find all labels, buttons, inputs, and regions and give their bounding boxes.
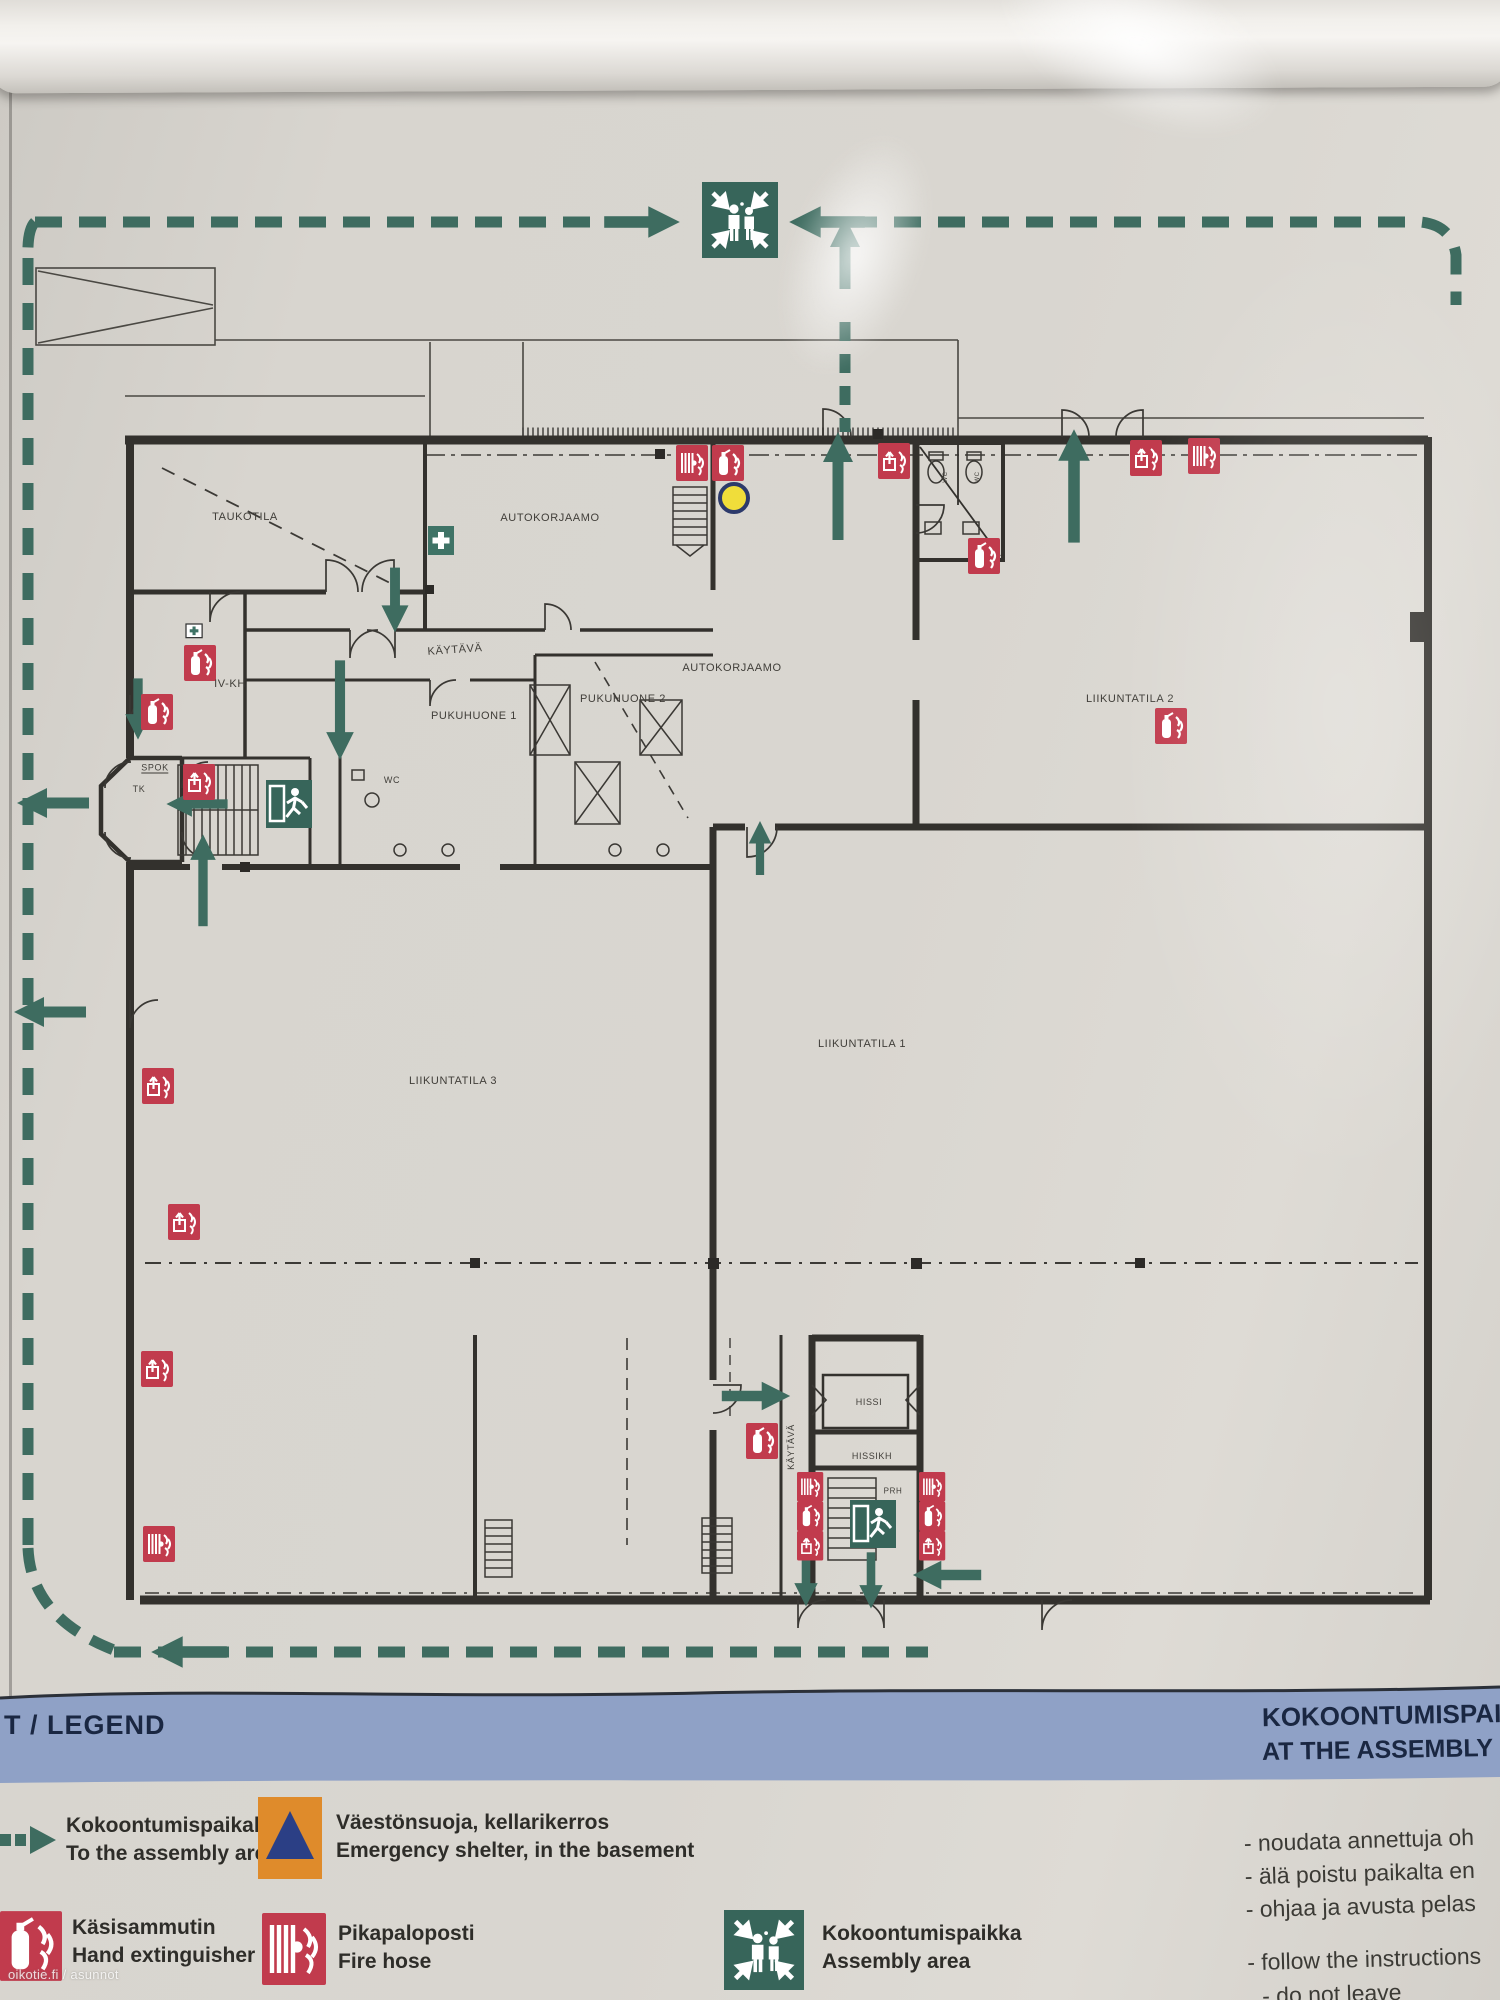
legend-item-assembly: Kokoontumispaikka Assembly area — [720, 1910, 1022, 1990]
banner-legend-title: T / LEGEND — [4, 1710, 166, 1741]
evacuation-arrows — [14, 206, 1090, 1668]
banner-assembly-title-line2: AT THE ASSEMBLY — [1262, 1734, 1494, 1767]
room-label-autokorjaamo-2: AUTOKORJAAMO — [682, 662, 781, 674]
room-label-iv-kh: IV-KH — [214, 678, 246, 690]
room-label-spok: SPOK — [141, 763, 168, 774]
legend-banner: T / LEGEND KOKOONTUMISPAIK AT THE ASSEMB… — [0, 1678, 1500, 1790]
room-label-hissikh: HISSIKH — [852, 1451, 892, 1461]
room-label-kaytava-vertical: KÄYTÄVÄ — [786, 1424, 796, 1470]
room-label-tk: TK — [133, 784, 146, 794]
legend-hose-fi: Pikapaloposti — [338, 1920, 475, 1948]
safety-signs — [141, 182, 1220, 1562]
room-label-autokorjaamo-1: AUTOKORJAAMO — [500, 512, 599, 524]
column-markers — [240, 429, 1145, 1269]
fire-hose-icon — [262, 1908, 326, 1990]
room-label-taukotila: TAUKOTILA — [212, 511, 278, 523]
legend-shelter-en: Emergency shelter, in the basement — [336, 1837, 694, 1865]
route-arrow-icon — [0, 1820, 58, 1860]
legend-item-hose: Pikapaloposti Fire hose — [262, 1908, 475, 1990]
room-label-pukuhuone-2: PUKUHUONE 2 — [580, 693, 666, 705]
room-label-wc-small-2: WC — [975, 471, 981, 482]
stairs — [178, 487, 876, 1577]
assembly-area-icon — [720, 1910, 808, 1990]
legend-route-en: To the assembly area — [66, 1840, 278, 1868]
room-label-hissi: HISSI — [856, 1397, 883, 1407]
watermark: oikotie.fi / asunnot — [8, 1967, 119, 1982]
legend-item-shelter: Väestönsuoja, kellarikerros Emergency sh… — [258, 1797, 694, 1879]
room-label-wc: WC — [384, 775, 400, 785]
room-label-prh: PRH — [884, 1487, 903, 1496]
legend-hose-en: Fire hose — [338, 1948, 475, 1976]
legend-shelter-fi: Väestönsuoja, kellarikerros — [336, 1809, 694, 1837]
legend-extinguisher-en: Hand extinguisher — [72, 1942, 255, 1970]
legend-extinguisher-fi: Käsisammutin — [72, 1914, 255, 1942]
you-are-here-marker — [720, 484, 748, 512]
instruction-fi-3: - ohjaa ja avusta pelas — [1245, 1887, 1480, 1927]
shelter-triangle-icon — [258, 1797, 322, 1879]
room-label-liikuntatila-3: LIIKUNTATILA 3 — [409, 1075, 497, 1087]
assembly-point-sign — [702, 182, 778, 258]
room-label-wc-small-1: WC — [943, 471, 949, 482]
legend-assembly-fi: Kokoontumispaikka — [822, 1920, 1022, 1948]
legend-assembly-en: Assembly area — [822, 1948, 1022, 1976]
room-label-pukuhuone-1: PUKUHUONE 1 — [431, 710, 517, 722]
banner-band — [0, 1678, 1500, 1790]
room-label-liikuntatila-1: LIIKUNTATILA 1 — [818, 1038, 906, 1050]
assembly-instructions: - noudata annettuja oh - älä poistu paik… — [1243, 1821, 1482, 2000]
legend-item-route: Kokoontumispaikalle To the assembly area — [0, 1812, 278, 1868]
banner-assembly-title-line1: KOKOONTUMISPAIK — [1262, 1698, 1500, 1733]
glass-glare-soft — [1130, 260, 1500, 1160]
evacuation-plan-photo: TAUKOTILA AUTOKORJAAMO KÄYTÄVÄ IV-KH PUK… — [0, 0, 1500, 2000]
legend-route-fi: Kokoontumispaikalle — [66, 1812, 278, 1840]
instruction-en-1: - follow the instructions — [1247, 1940, 1482, 1980]
